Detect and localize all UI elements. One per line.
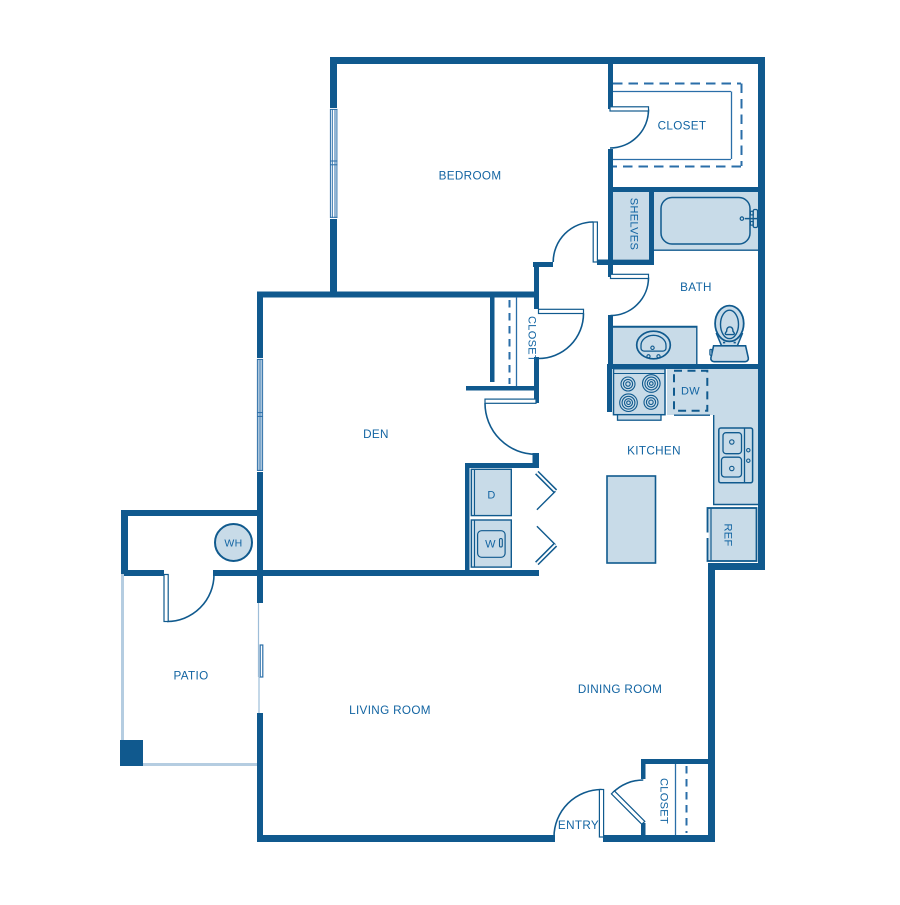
svg-text:CLOSET: CLOSET [658,778,670,824]
svg-text:REF: REF [722,523,734,546]
svg-text:DEN: DEN [363,428,389,441]
svg-text:CLOSET: CLOSET [526,316,538,362]
svg-text:CLOSET: CLOSET [658,120,707,133]
svg-text:D: D [487,490,495,502]
svg-text:DW: DW [681,386,700,398]
svg-text:BATH: BATH [680,281,712,294]
svg-text:KITCHEN: KITCHEN [627,445,681,458]
svg-text:DINING ROOM: DINING ROOM [578,683,662,696]
svg-text:W: W [485,539,496,551]
svg-text:WH: WH [224,538,242,550]
svg-text:PATIO: PATIO [173,670,208,683]
svg-text:LIVING ROOM: LIVING ROOM [349,704,431,717]
svg-text:ENTRY: ENTRY [558,819,599,832]
svg-text:BEDROOM: BEDROOM [439,170,502,183]
svg-text:SHELVES: SHELVES [628,198,640,250]
